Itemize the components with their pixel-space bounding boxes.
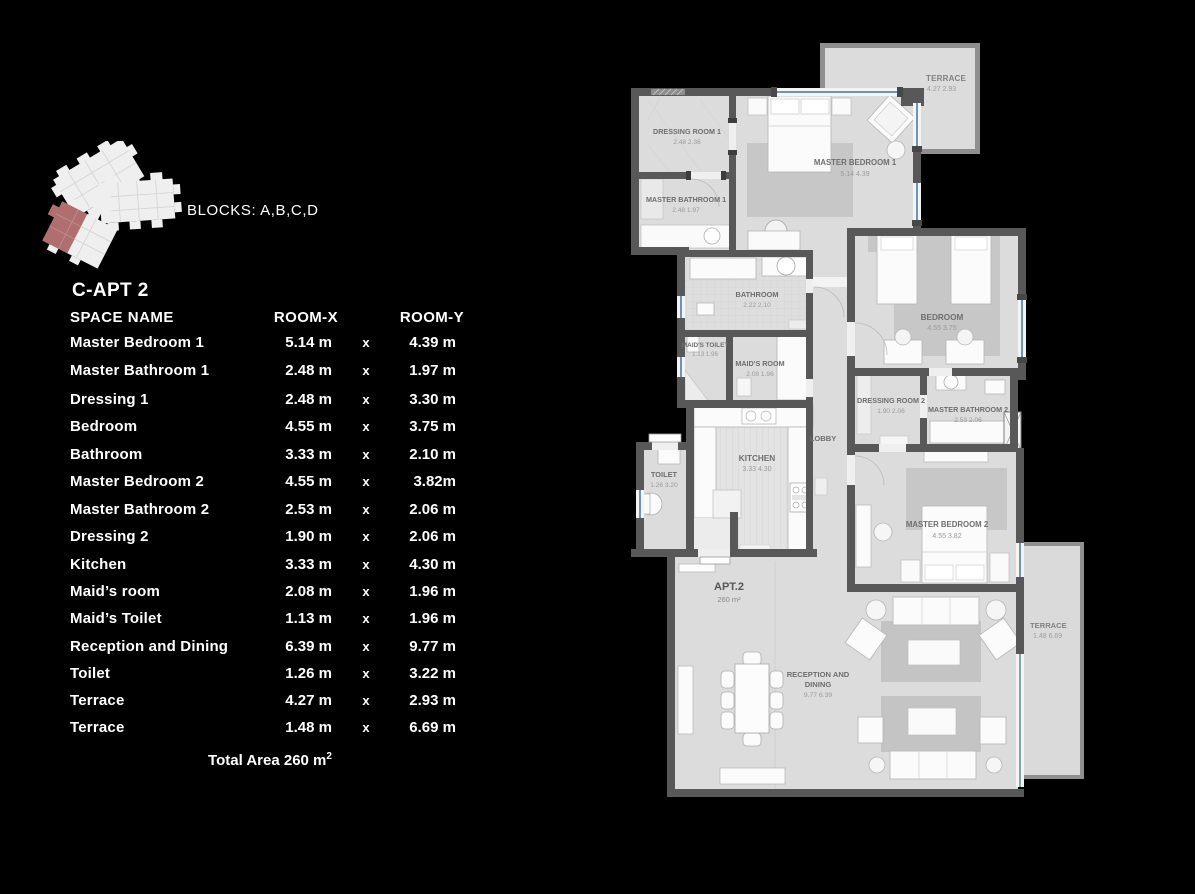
svg-text:5.14 4.39: 5.14 4.39 [840, 171, 869, 178]
svg-text:4.27 2.93: 4.27 2.93 [927, 86, 956, 93]
svg-text:3.33 4.30: 3.33 4.30 [742, 466, 771, 473]
svg-text:MAID'S TOILET: MAID'S TOILET [682, 342, 729, 349]
svg-text:2.48 1.97: 2.48 1.97 [672, 207, 700, 214]
svg-text:RECEPTION AND: RECEPTION AND [787, 670, 850, 679]
svg-text:DINING: DINING [805, 680, 832, 689]
svg-text:MASTER BEDROOM 2: MASTER BEDROOM 2 [906, 520, 989, 529]
svg-text:TERRACE: TERRACE [1030, 621, 1067, 630]
svg-text:2.08 1.96: 2.08 1.96 [746, 371, 774, 378]
svg-text:4.55 3.82: 4.55 3.82 [932, 533, 961, 540]
svg-text:MAID'S ROOM: MAID'S ROOM [735, 359, 784, 368]
svg-text:KITCHEN: KITCHEN [739, 454, 775, 463]
svg-text:BATHROOM: BATHROOM [736, 290, 779, 299]
svg-text:TERRACE: TERRACE [926, 74, 967, 83]
svg-text:2.53 2.06: 2.53 2.06 [954, 417, 982, 424]
svg-text:LOBBY: LOBBY [810, 434, 837, 443]
svg-text:TOILET: TOILET [651, 470, 678, 479]
svg-text:9.77 6.39: 9.77 6.39 [804, 692, 833, 699]
svg-text:MASTER BATHROOM 2: MASTER BATHROOM 2 [928, 405, 1008, 414]
svg-text:1.48 6.69: 1.48 6.69 [1033, 633, 1062, 640]
svg-text:BEDROOM: BEDROOM [921, 313, 964, 322]
svg-text:MASTER BEDROOM 1: MASTER BEDROOM 1 [814, 158, 897, 167]
svg-text:DRESSING ROOM 1: DRESSING ROOM 1 [653, 127, 721, 136]
svg-text:1.90 2.06: 1.90 2.06 [877, 408, 905, 415]
svg-text:2.48 2.36: 2.48 2.36 [673, 139, 701, 146]
svg-text:DRESSING ROOM 2: DRESSING ROOM 2 [857, 396, 925, 405]
svg-text:2.22 2.10: 2.22 2.10 [743, 302, 771, 309]
svg-text:260 m²: 260 m² [717, 595, 741, 604]
svg-text:MASTER BATHROOM 1: MASTER BATHROOM 1 [646, 195, 726, 204]
svg-text:1.26 3.20: 1.26 3.20 [650, 482, 678, 489]
svg-text:1.13 1.96: 1.13 1.96 [692, 351, 718, 358]
svg-text:4.55 3.75: 4.55 3.75 [927, 325, 956, 332]
svg-text:APT.2: APT.2 [714, 581, 744, 593]
